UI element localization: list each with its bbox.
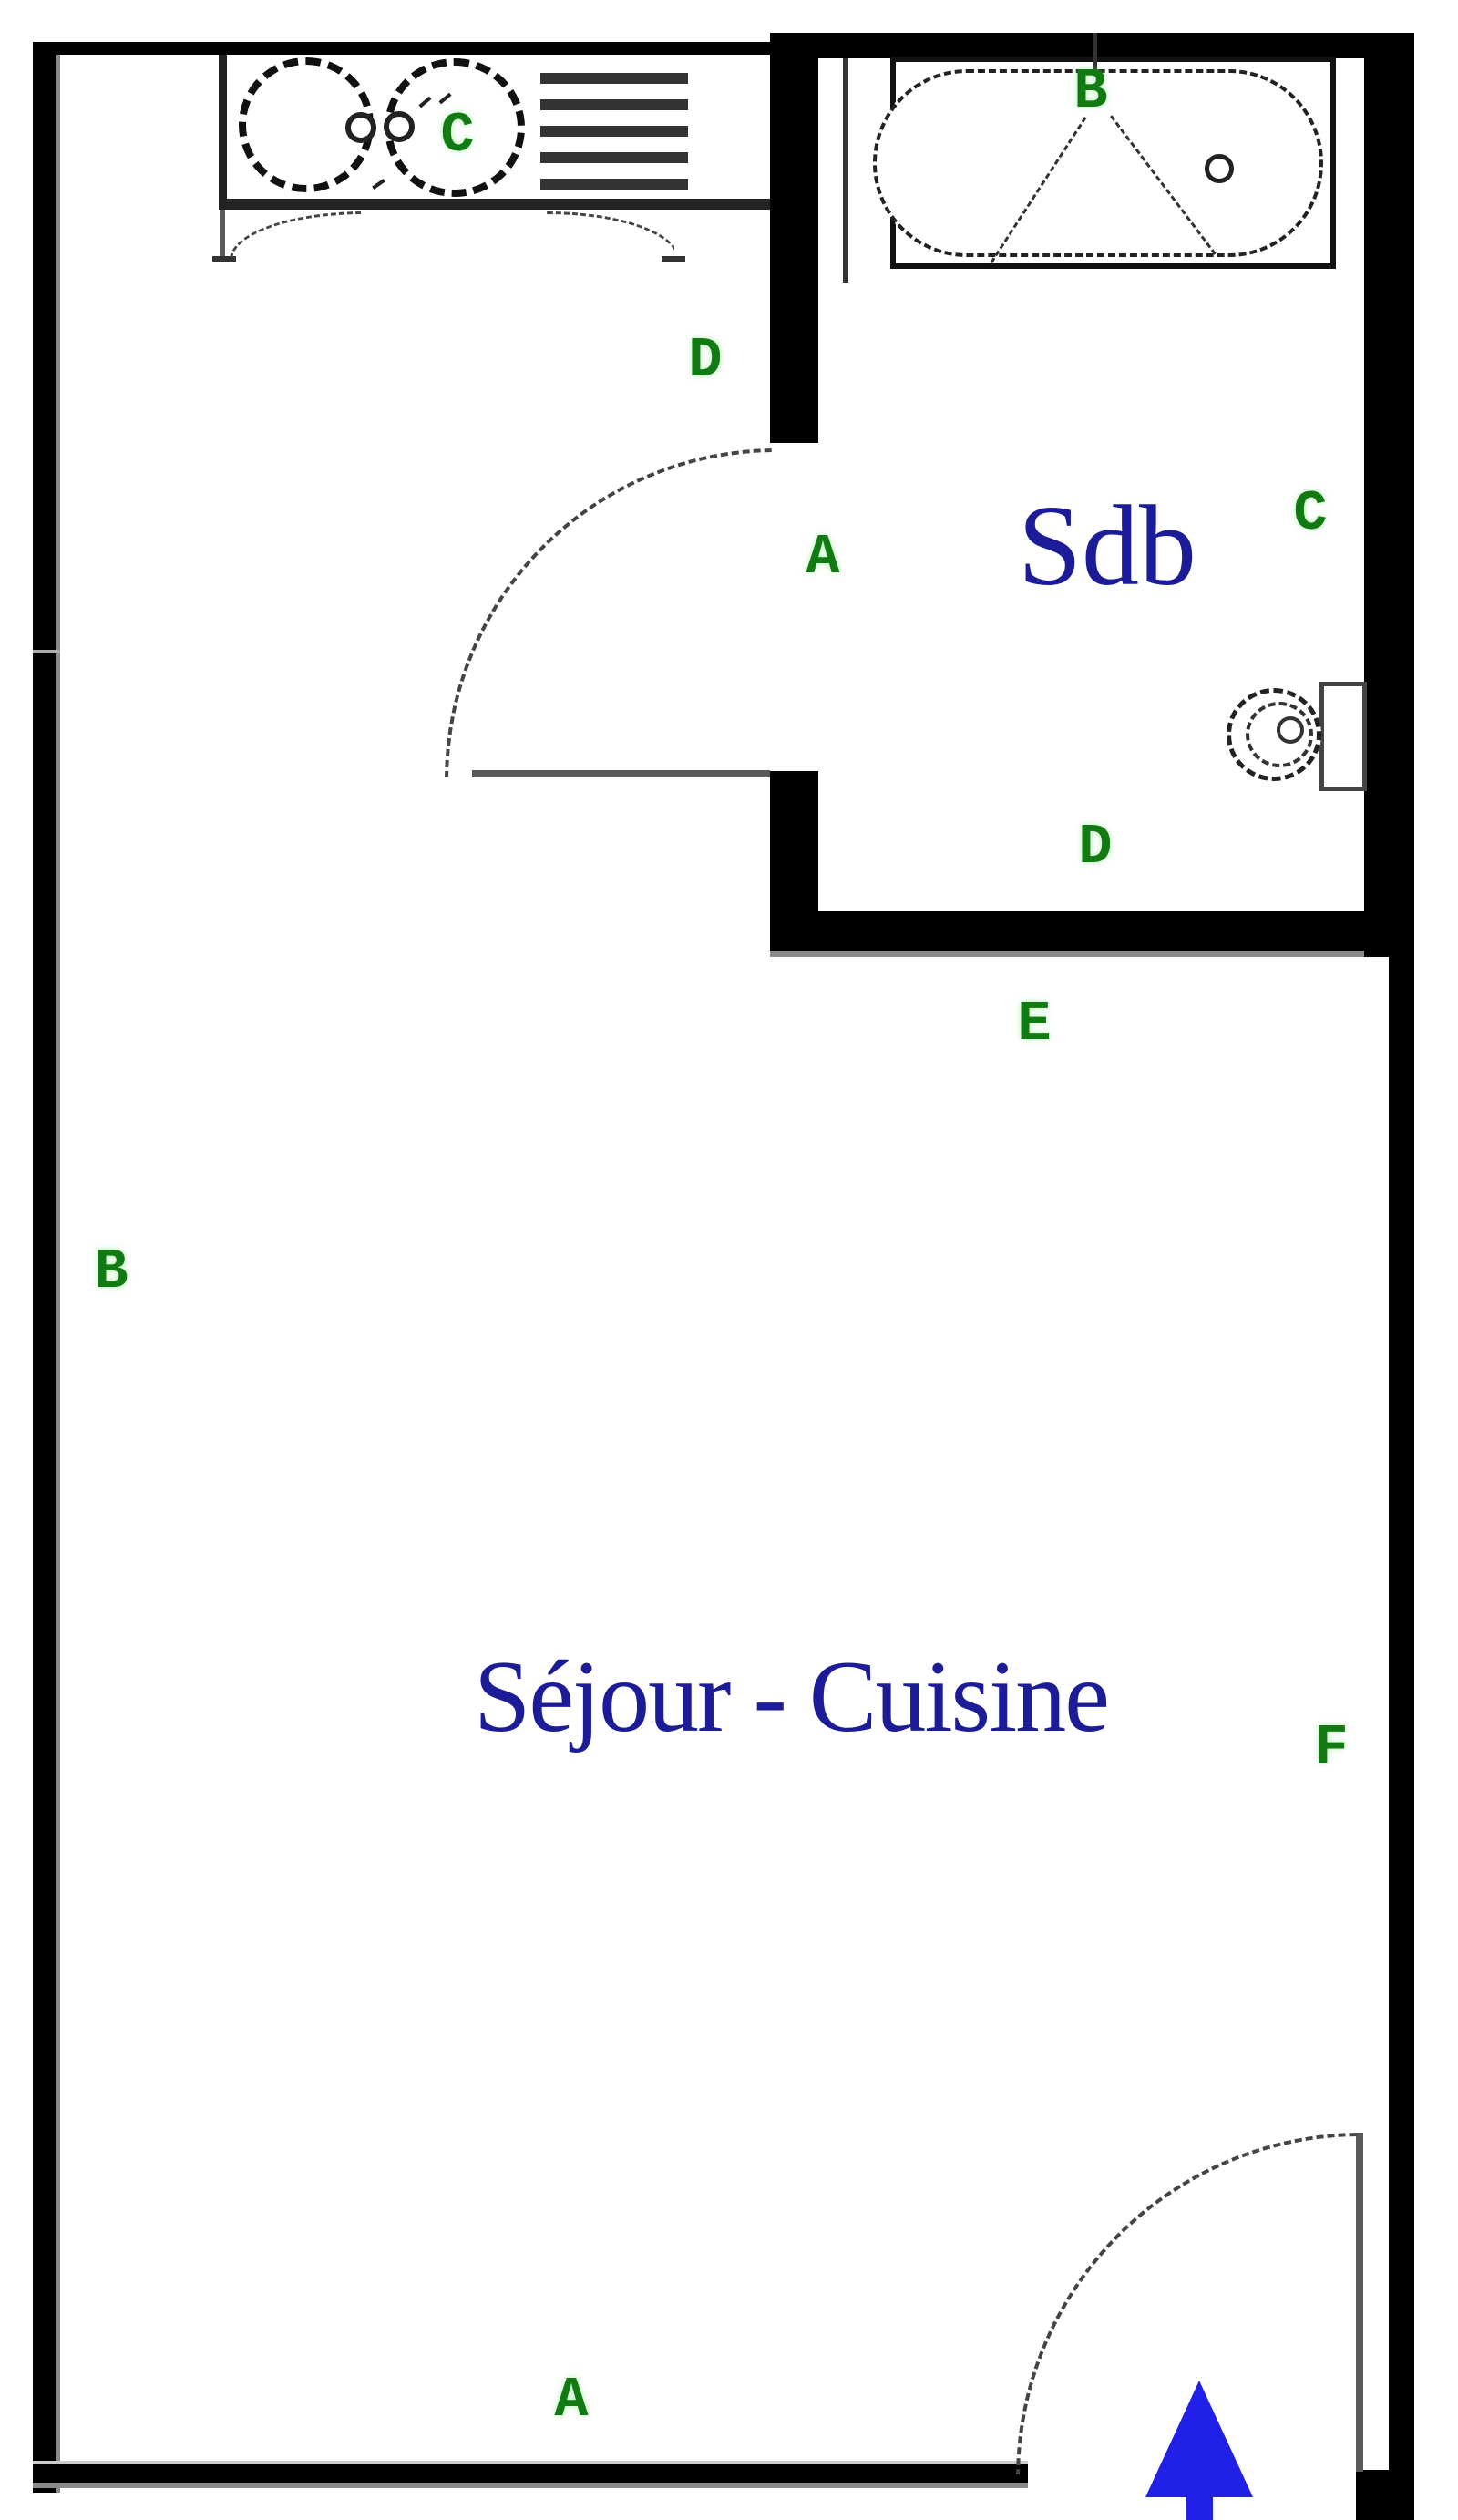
bathroom-door-swing-arc bbox=[445, 448, 773, 777]
kitchen-counter-left-edge bbox=[219, 55, 227, 210]
drainboard-bar bbox=[540, 179, 688, 190]
entry-arrow-icon bbox=[1145, 2381, 1253, 2497]
kitchen-faucet-left-icon bbox=[345, 112, 376, 143]
marker-b-bathtub: B bbox=[1073, 64, 1107, 120]
kitchen-counter-front-edge bbox=[219, 199, 770, 210]
bathtub-drain-icon bbox=[1205, 154, 1234, 183]
bathtub-alcove-line bbox=[843, 58, 848, 283]
wall-left bbox=[33, 42, 60, 2493]
marker-f-right-wall: F bbox=[1314, 1720, 1348, 1776]
wall-top-bathroom bbox=[770, 33, 1414, 58]
drainboard-bar bbox=[540, 126, 688, 137]
marker-d-bathroom-bottom: D bbox=[1078, 819, 1112, 876]
marker-c-kitchen-sink: C bbox=[440, 108, 474, 164]
toilet-tank-icon bbox=[1319, 682, 1367, 791]
marker-e-partition-wall: E bbox=[1017, 996, 1051, 1053]
marker-d-bathroom-door: D bbox=[688, 333, 722, 389]
sink-dash bbox=[372, 179, 385, 190]
wall-top-kitchen bbox=[33, 42, 770, 55]
marker-a-bottom-wall: A bbox=[554, 2372, 588, 2429]
wall-bathroom-right bbox=[1364, 33, 1414, 957]
wall-kitchen-bathroom-divider bbox=[770, 33, 818, 443]
room-label-sdb: Sdb bbox=[1018, 489, 1196, 604]
kitchen-faucet-right-icon bbox=[384, 111, 415, 142]
drainboard-bar bbox=[540, 73, 688, 84]
wall-left-seam bbox=[33, 650, 60, 653]
cabinet-swing-arc-left bbox=[230, 211, 362, 257]
entry-arrow-shaft bbox=[1186, 2495, 1213, 2520]
room-label-sejour-cuisine: Séjour - Cuisine bbox=[474, 1646, 1108, 1748]
drainboard-bar bbox=[540, 99, 688, 110]
cabinet-swing-arc-right bbox=[545, 211, 674, 257]
toilet-bowl-inner bbox=[1277, 716, 1304, 744]
wall-bottom bbox=[33, 2461, 1028, 2488]
wall-bathroom-bottom bbox=[770, 911, 1414, 957]
cabinet-door-line bbox=[220, 210, 225, 257]
floor-plan: Sdb Séjour - Cuisine C B D A C D E B F A bbox=[0, 0, 1458, 2520]
drainboard-bar bbox=[540, 152, 688, 163]
marker-a-bathroom-floor: A bbox=[806, 530, 839, 586]
wall-bottom-right-corner bbox=[1356, 2470, 1414, 2520]
wall-sejour-right bbox=[1389, 957, 1414, 2520]
marker-b-left-wall: B bbox=[94, 1244, 128, 1301]
marker-c-bathroom-wall: C bbox=[1293, 486, 1327, 542]
